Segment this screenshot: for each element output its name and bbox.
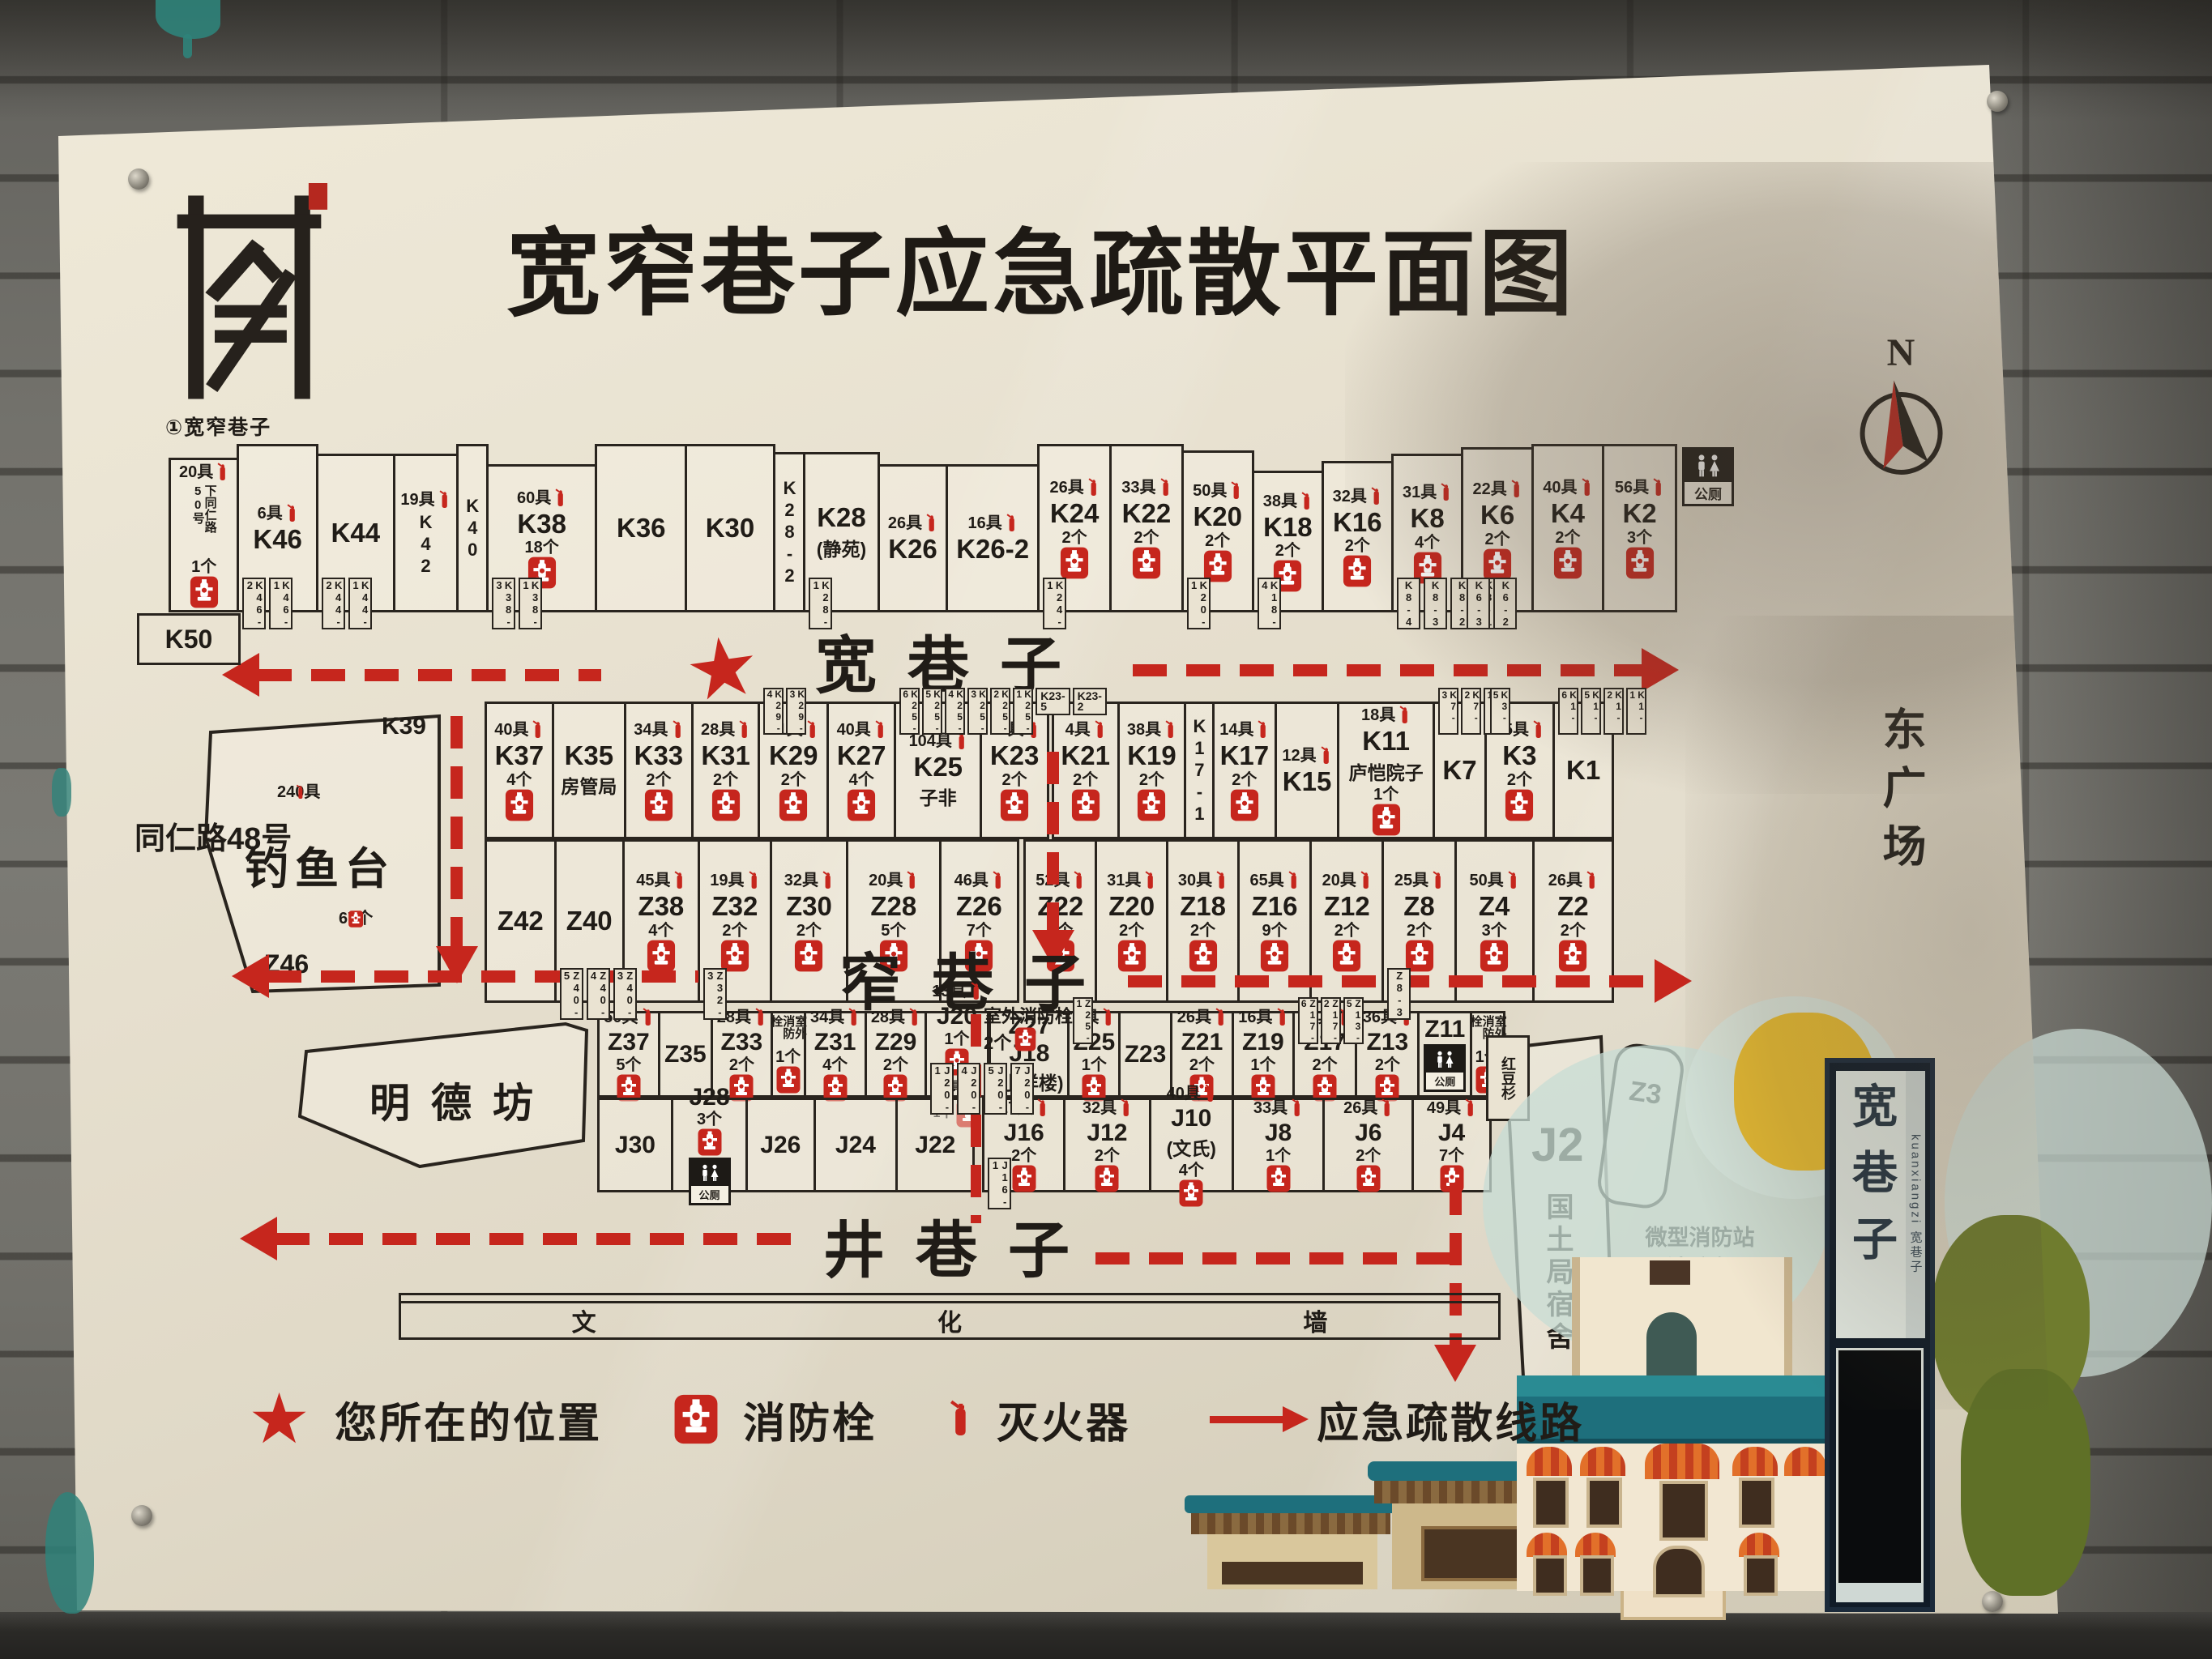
bottom-sub-blocks: K20-1 [1187,578,1211,629]
gate-lattice [1222,1562,1363,1584]
sub-block-K29-3: K29-3 [786,688,806,735]
window [1533,1555,1567,1596]
bottom-sub-blocks: K28-1 [809,578,832,629]
sub-block-K28-1: K28-1 [809,578,832,629]
sub-block-K25-6: K25-6 [899,688,920,735]
banner-calligraphy-panel: 宽巷子 [1836,1071,1906,1338]
top-sub-blocks: K1-6K1-5K1-2K1-1 [1558,688,1646,735]
western-building-arch [1646,1312,1697,1379]
window [1739,1478,1774,1528]
sub-block-K24-1: K24-1 [1043,578,1066,629]
sub-block-J20-7: J20-7 [1010,1063,1034,1115]
banner-black-panel [1836,1348,1924,1588]
bottom-sub-blocks: K24-1 [1043,578,1066,629]
sub-block-Z17-2: Z17-2 [1321,997,1341,1044]
window [1580,1555,1614,1596]
sub-block-Z13-5: Z13-5 [1343,997,1364,1044]
outdoor-hydrant-label: 室外消防栓 [984,1008,1073,1026]
bush [1961,1369,2090,1596]
sub-block-J20-1: J20-1 [930,1063,954,1115]
bottom-sub-blocks: K18-4 [1258,578,1281,629]
window [1744,1555,1778,1596]
sub-block-K25-3: K25-3 [967,688,988,735]
legend: ★ 您所在的位置 消防栓 灭火器 应急疏散线路 [248,1377,1584,1461]
awning [1645,1444,1719,1479]
legend-you-are-here: 您所在的位置 [335,1389,602,1450]
bottom-sub-blocks: K6-3K6-2 [1467,578,1517,629]
sub-block-Z17-6: Z17-6 [1298,997,1318,1044]
star-icon: ★ [248,1384,310,1454]
fire-extinguisher-icon [948,1397,972,1442]
sub-block-Z40-4: Z40-4 [587,968,610,1020]
kuanxiangzi-banner: 宽巷子 kuanxiangzi 宽巷子 [1825,1058,1935,1612]
gate-roof [1185,1495,1397,1513]
bottom-sub-blocks: Z32-3 [703,968,727,1020]
top-sub-blocks: K25-6K25-5K25-4K25-3K25-2K25-1K23-5K23-2 [899,688,1107,735]
bottom-sub-blocks: K46-2K46-1 [242,578,293,629]
mounting-screw [131,1505,152,1526]
bottom-sub-blocks: J20-1J20-4J20-5J20-7 [930,1063,1034,1115]
sub-block-K18-4: K18-4 [1258,578,1281,629]
window [1586,1478,1622,1528]
legend-hydrant: 消防栓 [743,1389,877,1450]
sub-block-Z40-3: Z40-3 [613,968,637,1020]
sub-block-K1-2: K1-2 [1603,688,1624,735]
banner-side-text: kuanxiangzi 宽巷子 [1906,1071,1925,1338]
legend-route: 应急疏散线路 [1317,1389,1584,1450]
top-sub-blocks: Z25-1 [1073,997,1093,1044]
sub-block-J16-1: J16-1 [988,1158,1011,1209]
sub-block-K7-2: K7-2 [1461,688,1481,735]
balcony-window [1659,1481,1708,1541]
route-arrow-icon [1210,1416,1284,1423]
sub-block-K38-3: K38-3 [492,578,515,629]
banner-foot-panel [1836,1583,1924,1602]
bottom-sub-blocks: K44-2K44-1 [322,578,372,629]
banner-text: 宽巷子 [1838,1082,1904,1282]
fire-hydrant-icon [673,1394,719,1444]
sub-block-K25-1: K25-1 [1013,688,1033,735]
top-sub-blocks: K3-5 [1490,688,1510,735]
entrance-door [1653,1546,1705,1597]
sub-block-K1-6: K1-6 [1558,688,1578,735]
sub-block-K8-4: K8-4 [1397,578,1420,629]
sub-block-K44-1: K44-1 [348,578,372,629]
sub-block-K6-2: K6-2 [1493,578,1517,629]
gate-eave [1191,1513,1390,1534]
sub-block-Z40-5: Z40-5 [560,968,583,1020]
map-block-K50: K50 [137,613,241,665]
western-building-plaque [1650,1260,1690,1285]
bottom-sub-blocks: Z8-3 [1387,968,1411,1020]
sub-block-K25-5: K25-5 [922,688,942,735]
sub-block-K46-1: K46-1 [269,578,293,629]
sub-block-K38-1: K38-1 [519,578,542,629]
sub-block-K25-4: K25-4 [945,688,965,735]
legend-extinguisher: 灭火器 [997,1389,1130,1450]
sub-block-K25-2: K25-2 [990,688,1010,735]
fire-hydrant-icon [1014,1027,1036,1051]
top-sub-blocks: K29-4K29-3 [763,688,806,735]
photo-of-evacuation-map-sign: 宽巷子 kuanxiangzi 宽巷子 [0,0,2212,1659]
bottom-sub-blocks: J16-1 [988,1158,1011,1209]
mounting-screw [1982,1591,2003,1612]
sub-block-K23-2: K23-2 [1073,688,1107,715]
sub-block-K1-5: K1-5 [1581,688,1601,735]
teal-paint-splash [52,768,71,817]
sub-block-K20-1: K20-1 [1187,578,1211,629]
sub-block-K46-2: K46-2 [242,578,266,629]
gate-panel [1421,1526,1527,1581]
bottom-sub-blocks: Z40-5Z40-4Z40-3 [560,968,637,1020]
outdoor-hydrant-note: 室外消防栓 2个 [984,1008,1073,1060]
sub-block-Z8-3: Z8-3 [1387,968,1411,1020]
top-sub-blocks: Z17-6Z17-2Z13-5 [1298,997,1364,1044]
window [1533,1478,1569,1528]
sub-block-K29-4: K29-4 [763,688,784,735]
sub-block-Z25-1: Z25-1 [1073,997,1093,1044]
sub-block-Z32-3: Z32-3 [703,968,727,1020]
mounting-screw [1987,91,2008,112]
sub-block-J20-4: J20-4 [957,1063,980,1115]
sub-block-J20-5: J20-5 [984,1063,1007,1115]
sub-block-K23-5: K23-5 [1036,688,1070,715]
sub-block-K3-5: K3-5 [1490,688,1510,735]
sub-block-K1-1: K1-1 [1626,688,1646,735]
outdoor-hydrant-count: 2个 [984,1034,1011,1052]
mounting-screw [128,168,149,190]
sub-block-K8-3: K8-3 [1424,578,1447,629]
sub-block-K6-3: K6-3 [1467,578,1490,629]
sub-block-K7-3: K7-3 [1438,688,1458,735]
sub-block-K44-2: K44-2 [322,578,345,629]
bottom-sub-blocks: K38-3K38-1 [492,578,542,629]
